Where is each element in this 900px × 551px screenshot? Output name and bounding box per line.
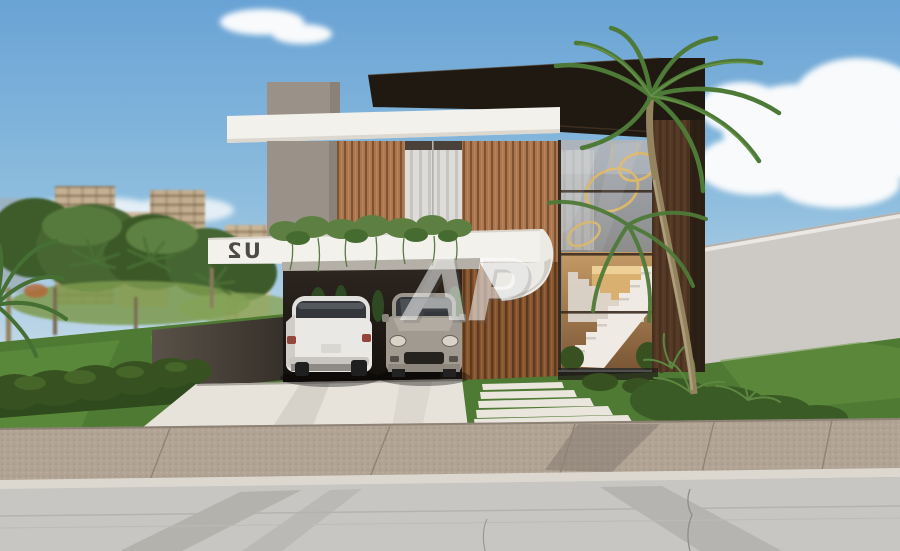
license-plate	[321, 344, 341, 353]
architectural-rendering: U2	[0, 0, 900, 551]
palm-trunk	[210, 268, 214, 308]
taillight	[287, 336, 296, 344]
wheel	[295, 362, 309, 376]
wheel	[443, 369, 456, 377]
wheel	[392, 369, 405, 377]
watermark: AP AP	[399, 241, 532, 344]
car-white-suv	[280, 296, 380, 387]
render-scene: U2	[0, 0, 900, 551]
flowering-shrub	[24, 284, 48, 298]
wheel	[351, 360, 367, 376]
watermark-text: AP	[399, 241, 529, 341]
road	[0, 477, 900, 551]
grille	[404, 352, 444, 364]
taillight	[362, 334, 371, 342]
headlight	[390, 336, 406, 347]
side-mirror	[382, 314, 389, 322]
house-number-sign: U2	[225, 239, 261, 263]
